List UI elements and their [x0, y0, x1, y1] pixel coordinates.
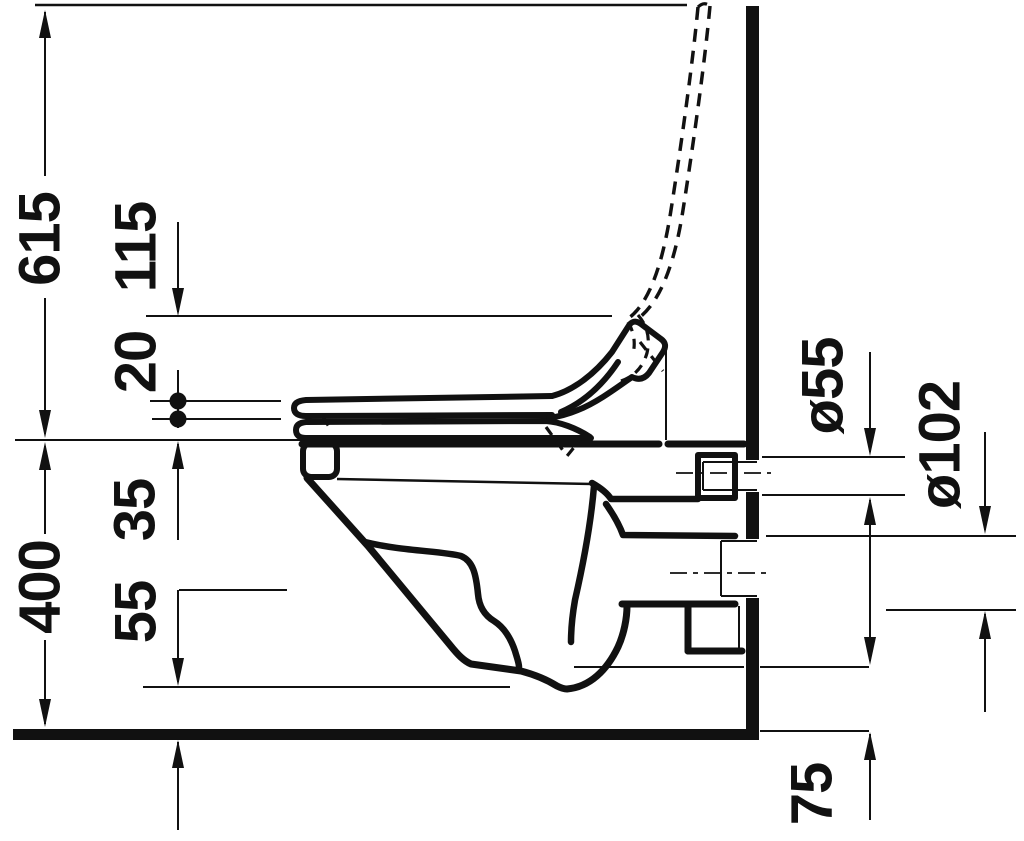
rim-front-lip	[303, 443, 337, 477]
dim-label-115: 115	[104, 202, 169, 293]
arrow-down-115	[172, 288, 184, 316]
toilet-dimension-drawing: 615 115 20 35 400 55 ø55 ø102 75	[0, 0, 1024, 841]
trap-weir-edge	[571, 486, 594, 642]
arrow-down-55	[172, 658, 184, 686]
arrow-up-615-top	[39, 10, 51, 38]
open-lid-dashed	[323, 4, 710, 456]
dim-dot-seat-bottom	[170, 411, 187, 428]
arrow-down-inlet-dia	[864, 428, 876, 456]
arrow-down-mid-bottom	[864, 637, 876, 665]
floor-line	[13, 729, 759, 740]
open-lid-inner-curve	[629, 7, 698, 318]
dim-label-outlet-dia: ø102	[908, 381, 973, 509]
arrow-down-400-bottom	[39, 699, 51, 727]
open-lid-tip-inner	[628, 322, 634, 354]
dim-label-75: 75	[780, 763, 845, 826]
dim-label-55: 55	[104, 581, 169, 644]
arrow-up-outlet-low	[979, 611, 991, 639]
arrow-up-mid-top	[864, 497, 876, 525]
technical-drawing-canvas: 615 115 20 35 400 55 ø55 ø102 75	[0, 0, 1024, 841]
bowl-inner-fold	[365, 542, 519, 667]
flush-channel-bottom	[592, 483, 698, 499]
open-lid-outer-curve	[640, 6, 710, 317]
dim-label-400: 400	[8, 540, 73, 634]
dim-label-inlet-dia: ø55	[791, 338, 856, 435]
rim-underside-line	[337, 479, 592, 484]
dim-label-20: 20	[104, 331, 169, 394]
outlet-channel-top	[606, 504, 735, 536]
lid-closed	[294, 396, 552, 416]
arrow-up-75	[864, 732, 876, 760]
wall-opening-outlet	[744, 539, 761, 598]
wall-line	[746, 6, 759, 740]
seat-and-lid	[294, 322, 665, 438]
arrow-down-615-bottom	[39, 410, 51, 438]
dim-label-35: 35	[103, 479, 168, 542]
dim-dot-seat-top	[170, 393, 187, 410]
wall-opening-inlet	[744, 460, 761, 492]
arrow-up-floor-left	[172, 740, 184, 768]
arrow-down-outlet-dia	[979, 506, 991, 534]
dim-label-615: 615	[8, 192, 73, 286]
arrow-up-35	[172, 441, 184, 469]
arrow-up-400-top	[39, 442, 51, 470]
